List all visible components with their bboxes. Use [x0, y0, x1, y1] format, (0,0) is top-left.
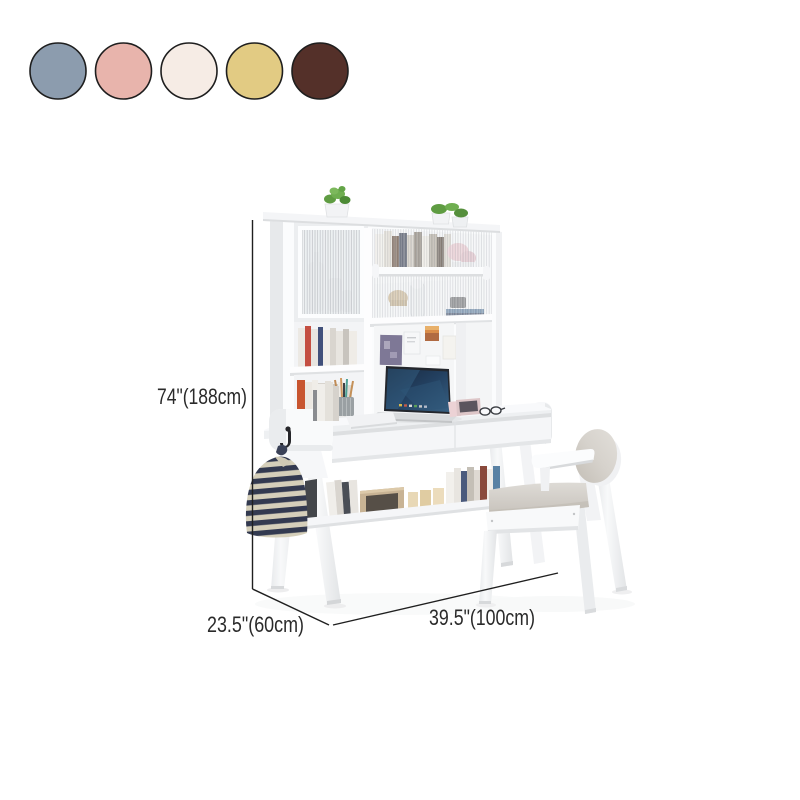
svg-text:23.5"(60cm): 23.5"(60cm) [207, 612, 304, 637]
svg-text:39.5"(100cm): 39.5"(100cm) [429, 605, 535, 630]
svg-text:74"(188cm): 74"(188cm) [157, 384, 247, 409]
